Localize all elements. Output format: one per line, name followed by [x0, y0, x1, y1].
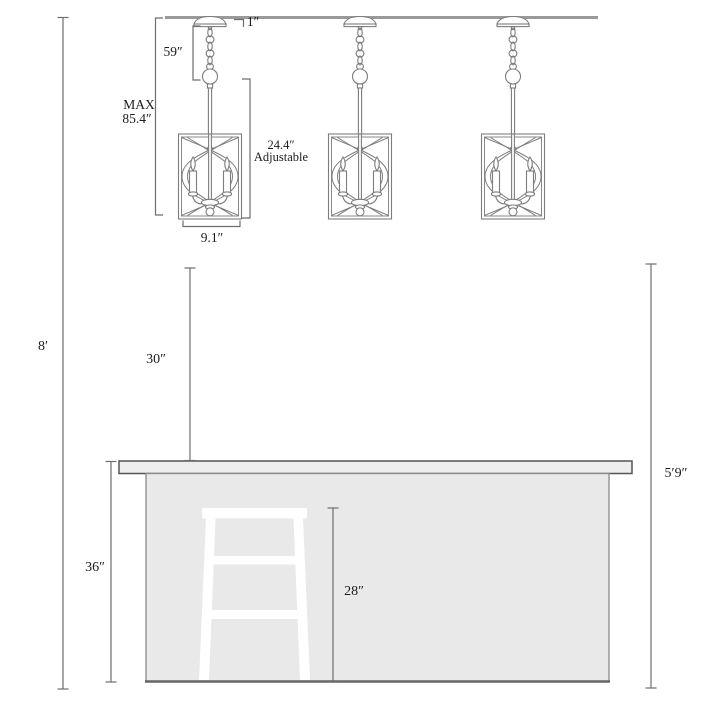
island-body: [146, 474, 609, 682]
pendant-2: [329, 17, 392, 220]
canopy-height-label: 1″: [242, 14, 264, 29]
max-height-label-line1: MAX: [109, 97, 169, 112]
floor-to-pendant-label: 5′9″: [651, 466, 701, 482]
max-height-label-line2: 85.4″: [107, 111, 167, 126]
dim-59: [193, 26, 201, 80]
diagram-line-art: [0, 0, 720, 720]
dimension-diagram: 1″ 59″ MAX 85.4″ 24.4″ Adjustable 9.1″ 8…: [0, 0, 720, 720]
pendant-to-counter-label: 30″: [136, 352, 176, 368]
dim-91-width: [183, 221, 240, 228]
pendant-3: [482, 17, 545, 220]
adjustable-range-label-line2: Adjustable: [241, 150, 321, 164]
dim-244-adjustable: [242, 79, 250, 218]
dim-30: [185, 268, 196, 461]
chain-length-label: 59″: [157, 44, 189, 59]
countertop: [119, 461, 632, 474]
stool-height-label: 28″: [334, 584, 374, 600]
counter-height-label: 36″: [75, 560, 115, 576]
fixture-width-label: 9.1″: [192, 230, 232, 245]
ceiling-height-label: 8′: [23, 339, 63, 355]
